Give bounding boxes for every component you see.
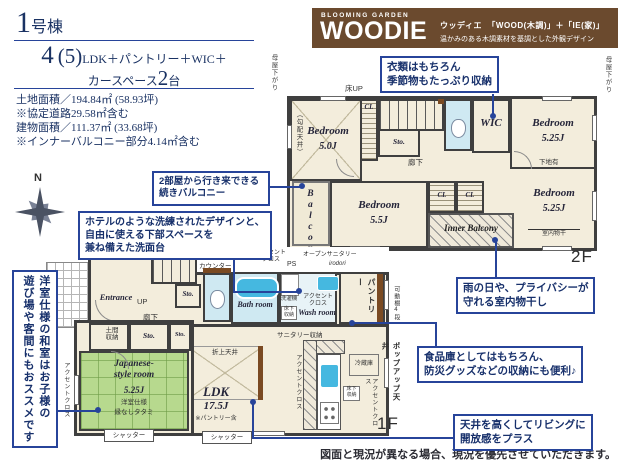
- brand-logo: WOODIE: [320, 19, 427, 44]
- shutter-a-label: シャッター: [105, 430, 153, 441]
- building-number: 1号棟: [16, 8, 63, 38]
- pantry-shelf: [377, 274, 383, 322]
- callout-washstand: ホテルのような洗練されたデザインと、 自由に使える下部スペースを 兼ね備えた洗面…: [78, 211, 272, 260]
- leader-dot: [492, 237, 498, 243]
- floor-2f-label: 2F: [571, 247, 593, 267]
- leader-line: [233, 258, 235, 292]
- flyer-page: 1号棟 4 (5)LDK＋パントリー＋WIC＋ カースペース2台 土地面積／19…: [0, 0, 620, 464]
- room-label-bedroom-s: Bedroom: [330, 199, 428, 212]
- raised-ceiling-label: 折上天井: [187, 349, 263, 356]
- storage-hall-label: Sto.: [175, 290, 201, 298]
- stove-icon: [320, 402, 339, 424]
- callout-wic-storage: 衣類はもちろん 季節物もたっぷり収納: [380, 56, 499, 93]
- stairs-up-label: UP: [137, 298, 147, 307]
- plan-rooms-paren: (5): [58, 44, 83, 68]
- shitaji-label: 下地有: [539, 159, 559, 166]
- room-label-bedroom-ne: Bedroom: [520, 117, 586, 130]
- building-number-suffix: 号棟: [31, 19, 63, 36]
- plan-rooms-number: 4: [41, 42, 54, 69]
- room-label-pantry: パントリー: [355, 278, 377, 320]
- shutter-box-a: シャッター: [104, 429, 154, 442]
- building-number-digit: 1: [16, 6, 31, 39]
- accent-cloth-wash-label: アクセント クロス: [303, 294, 333, 308]
- popup-ceiling-label: ポップアップ天井: [380, 342, 402, 408]
- room-label-bath: Bath room: [231, 300, 279, 310]
- callout-japanese-room: 洋室仕様の和室はお子様の 遊び場や客間にもおススメです: [12, 270, 58, 448]
- storage-b-label: Sto.: [169, 331, 191, 339]
- washer-label: 洗濯機: [279, 296, 299, 302]
- land-area-text: 土地面積／194.84㎡ (58.93坪): [16, 93, 200, 107]
- storage-a-label: Sto.: [129, 331, 169, 340]
- room-label-japanese: Japanese- style room: [79, 359, 189, 382]
- building-area-text: 建物面積／111.37㎡ (33.68坪): [16, 121, 200, 135]
- window: [542, 96, 572, 101]
- closet-top-label: CL: [360, 103, 378, 111]
- wall: [510, 99, 512, 169]
- sanitary-storage-label: サニタリー収納: [277, 332, 323, 339]
- compass-north-label: N: [34, 172, 42, 184]
- brand-name-formula: ウッディエ 「WOOD(木調)」＋「IE(家)」: [440, 20, 604, 31]
- window: [287, 125, 292, 149]
- door-arc: [514, 151, 532, 169]
- callout-raised-ceiling: 天井を高くしてリビングに 開放感をプラス: [453, 414, 593, 451]
- leader-dot: [299, 183, 305, 189]
- room-label-balcony: Balcony: [304, 189, 315, 239]
- irodori-label: irodori: [329, 261, 346, 268]
- road-note-text: ※協定道路29.58㎡含む: [16, 107, 200, 121]
- room-size-bedroom-se: 5.25J: [516, 203, 592, 215]
- doma-storage-label: 土間 収納: [99, 327, 125, 342]
- room-size-bedroom-s: 5.5J: [330, 215, 428, 227]
- storage-2f-label: Sto.: [378, 137, 420, 146]
- room-label-inner-balcony: Inner Balcony: [428, 223, 514, 234]
- bathtub-icon: [235, 277, 279, 299]
- leader-dot: [95, 407, 101, 413]
- stairs-2f: [378, 99, 444, 131]
- closet-a-label: CL: [428, 191, 456, 199]
- brand-kana: ウッディエ: [440, 21, 482, 30]
- window: [592, 115, 597, 141]
- header-divider-2: [14, 88, 254, 89]
- room-size-bedroom-nw: 5.0J: [298, 141, 358, 153]
- callout-pantry-use: 食品庫としてはもちろん、 防災グッズなどの収納にも便利♪: [417, 346, 583, 383]
- window: [74, 375, 79, 405]
- closet-b-label: CL: [456, 191, 484, 199]
- window: [320, 96, 346, 101]
- entrance-door-arc: [95, 300, 117, 322]
- movable-shelf-pantry-label: 可動棚4段: [392, 286, 399, 326]
- header-divider: [14, 40, 254, 41]
- room-size-ldk: 17.5J: [191, 400, 241, 413]
- brand-formula: 「WOOD(木調)」＋「IE(家)」: [487, 21, 604, 30]
- floor-1f-label: 1F: [377, 414, 399, 434]
- brand-tagline: 温かみのある木調素材を基調とした外観デザイン: [440, 34, 594, 44]
- window: [384, 280, 389, 310]
- fridge-label: 冷蔵庫: [349, 361, 379, 368]
- leader-line: [352, 322, 436, 324]
- kitchen-counter-side: [303, 340, 317, 430]
- sanitary-sink-icon: [317, 276, 339, 291]
- shutter-b-label: シャッター: [203, 432, 251, 443]
- moya-sagari-right-label: 母屋下がり: [602, 56, 612, 118]
- room-size-japanese: 5.25J: [79, 385, 189, 396]
- toilet-2f-icon: [451, 119, 466, 138]
- leader-line: [252, 437, 453, 439]
- callout-connected-balcony: 2部屋から行き来できる 続きバルコニー: [152, 171, 270, 206]
- room-size-bedroom-ne: 5.25J: [520, 133, 586, 145]
- callout-indoor-drying: 雨の日や、プライバシーが 守れる室内物干し: [456, 277, 595, 314]
- car-space-unit: 台: [168, 74, 180, 88]
- open-sanitary-label: オープンサニタリー: [303, 252, 357, 259]
- room-label-wic: WIC: [472, 117, 510, 130]
- plan-type-suffix: LDK＋パントリー＋WIC＋: [82, 52, 227, 66]
- leader-dot: [250, 399, 256, 405]
- floor-plan-1f-west: 土間 収納 Sto. Sto. Japanese- style room 5.2…: [74, 320, 194, 436]
- leader-line: [495, 240, 497, 277]
- shutter-box-b: シャッター: [202, 431, 252, 444]
- room-label-bedroom-nw: Bedroom: [298, 125, 358, 138]
- leader-dot: [490, 113, 496, 119]
- floor-plan-2f: （勾配天井） Bedroom 5.0J CL DN Sto. WIC Bedro…: [287, 96, 597, 251]
- leader-line: [233, 291, 300, 293]
- ldk-pantry-note: ※パントリー含: [191, 416, 241, 423]
- hallway-2f-label: 廊下: [408, 159, 423, 168]
- brand-banner: BLOOMING GARDEN WOODIE ウッディエ 「WOOD(木調)」＋…: [312, 8, 618, 48]
- compass-icon: [12, 184, 68, 245]
- window: [251, 431, 285, 436]
- underfloor-storage-wash-label: 床下 収納: [281, 307, 297, 319]
- leader-line: [252, 402, 254, 438]
- kitchen-sink-icon: [320, 364, 339, 388]
- leader-line: [435, 322, 437, 346]
- room-label-bedroom-se: Bedroom: [516, 187, 592, 200]
- area-specs: 土地面積／194.84㎡ (58.93坪) ※協定道路29.58㎡含む 建物面積…: [16, 93, 200, 149]
- sloped-ceiling-note: （勾配天井）: [293, 111, 303, 169]
- japanese-note-1: 洋室仕様: [79, 399, 189, 406]
- underfloor-storage-kitchen-label: 床下 収納: [343, 387, 360, 399]
- ps-label: PS: [287, 261, 296, 269]
- leader-dot: [349, 320, 355, 326]
- car-space-label: カースペース: [88, 74, 158, 88]
- leader-dot: [296, 288, 302, 294]
- window: [542, 246, 572, 251]
- accent-cloth-mid-label: アクセントクロス: [294, 354, 301, 414]
- toilet-1f-icon: [210, 290, 225, 309]
- moya-sagari-left-label: 母屋下がり: [268, 54, 278, 116]
- room-label-wash: Wash room: [297, 308, 337, 318]
- accent-cloth-kitchen-label: アクセントクロス: [363, 378, 377, 430]
- floor-up-label: 床UP: [345, 85, 363, 94]
- window: [592, 191, 597, 221]
- car-space-count: 2: [158, 66, 169, 90]
- indoor-drying-label: 室内物干: [528, 229, 580, 238]
- inner-balcony-note-text: ※インナーバルコニー部分4.14㎡含む: [16, 135, 200, 149]
